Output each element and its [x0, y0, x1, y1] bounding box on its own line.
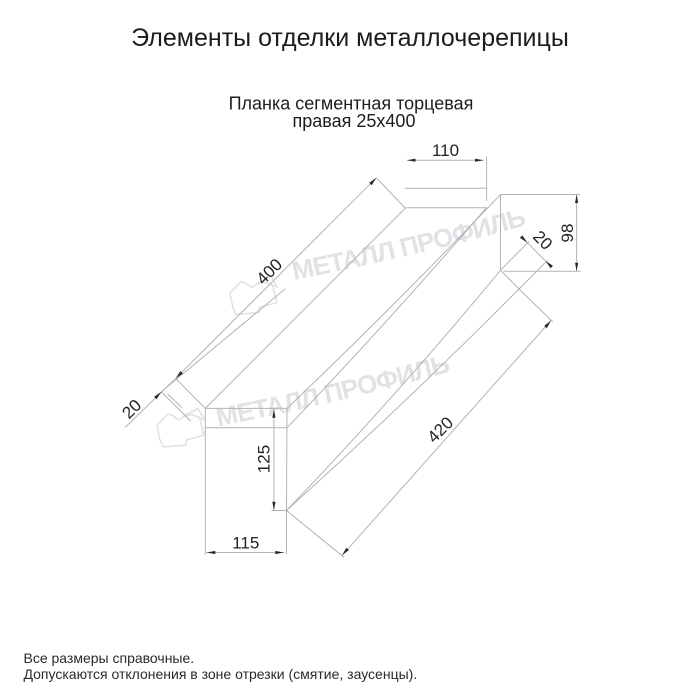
- svg-text:МЕТАЛЛ ПРОФИЛЬ: МЕТАЛЛ ПРОФИЛЬ: [289, 202, 528, 286]
- svg-text:правая 25х400: правая 25х400: [293, 111, 416, 131]
- svg-text:110: 110: [432, 141, 459, 160]
- svg-text:125: 125: [255, 445, 274, 473]
- svg-text:20: 20: [529, 227, 556, 254]
- svg-text:Элементы отделки металлочерепи: Элементы отделки металлочерепицы: [131, 24, 569, 52]
- svg-text:Все размеры справочные.: Все размеры справочные.: [24, 650, 195, 666]
- svg-text:20: 20: [118, 396, 145, 423]
- svg-text:115: 115: [232, 534, 259, 553]
- svg-text:Допускаются отклонения в зоне: Допускаются отклонения в зоне отрезки (с…: [24, 666, 418, 682]
- svg-text:98: 98: [558, 224, 577, 243]
- svg-text:420: 420: [424, 413, 457, 446]
